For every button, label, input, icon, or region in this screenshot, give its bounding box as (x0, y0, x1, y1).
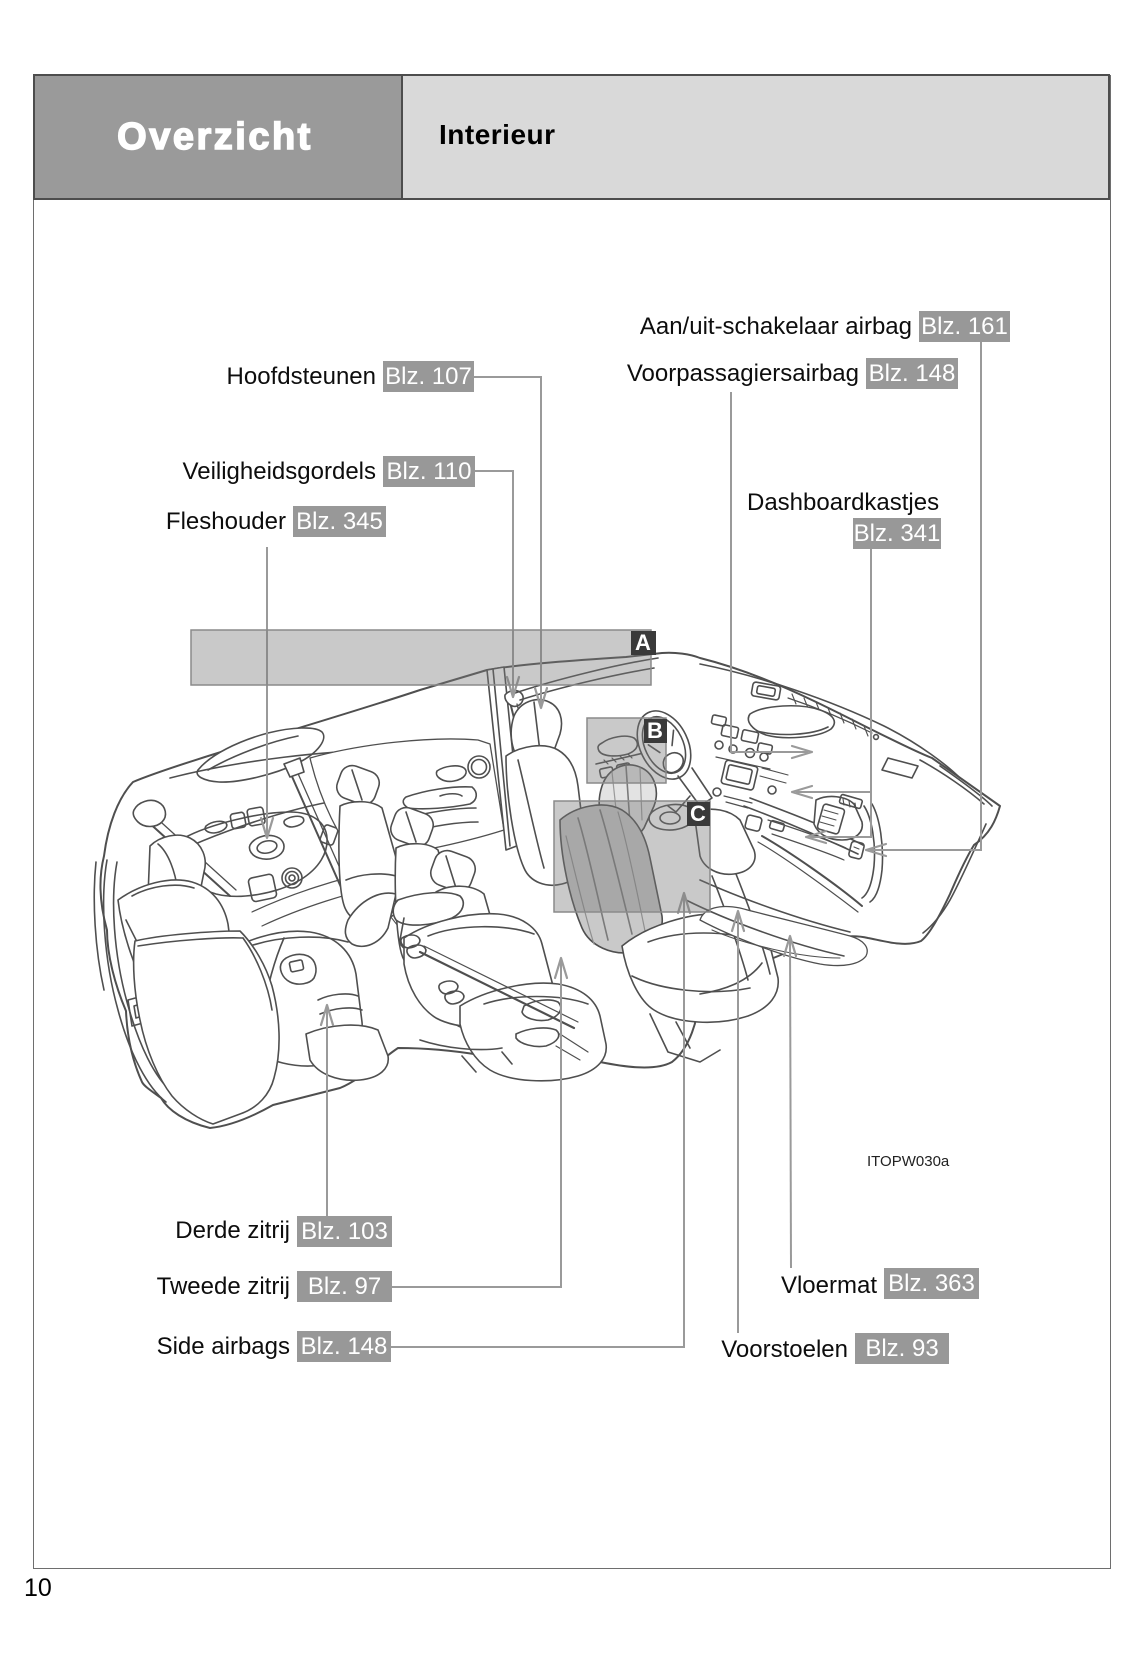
svg-text:B: B (647, 718, 663, 743)
svg-text:C: C (690, 801, 706, 826)
svg-text:A: A (635, 630, 651, 655)
